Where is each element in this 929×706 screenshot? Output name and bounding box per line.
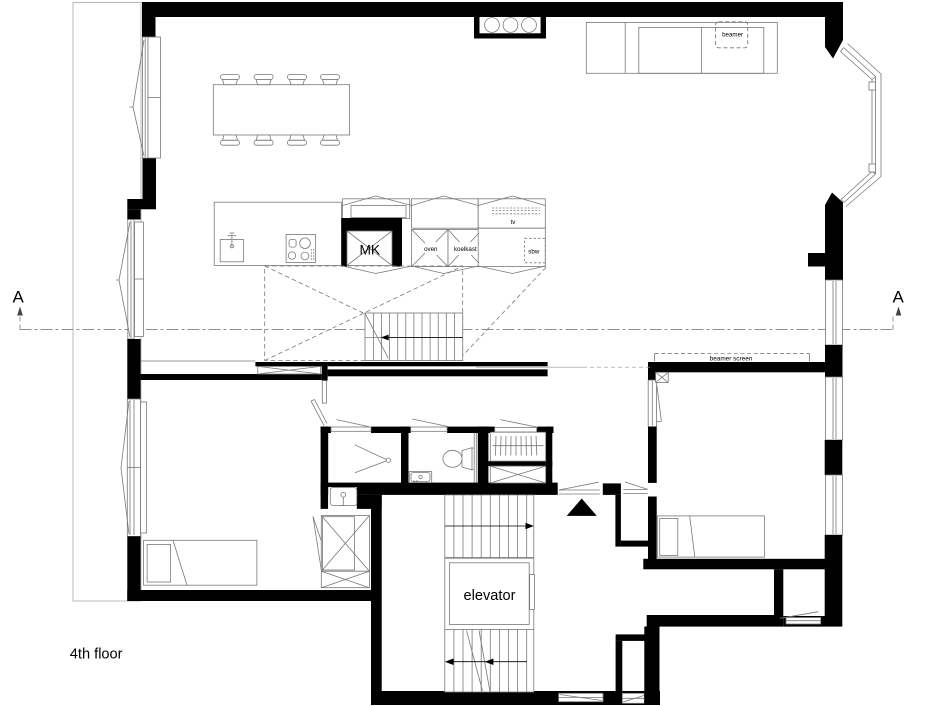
svg-text:koelkast: koelkast xyxy=(454,246,477,253)
svg-text:A: A xyxy=(893,288,905,307)
svg-text:beamer screen: beamer screen xyxy=(710,355,753,362)
svg-text:4th floor: 4th floor xyxy=(70,647,123,663)
svg-text:beamer: beamer xyxy=(722,32,743,39)
svg-text:sbw: sbw xyxy=(528,249,540,256)
svg-text:MK: MK xyxy=(359,243,380,258)
svg-text:elevator: elevator xyxy=(464,588,516,604)
svg-text:A: A xyxy=(13,288,25,307)
svg-text:oven: oven xyxy=(424,246,438,253)
